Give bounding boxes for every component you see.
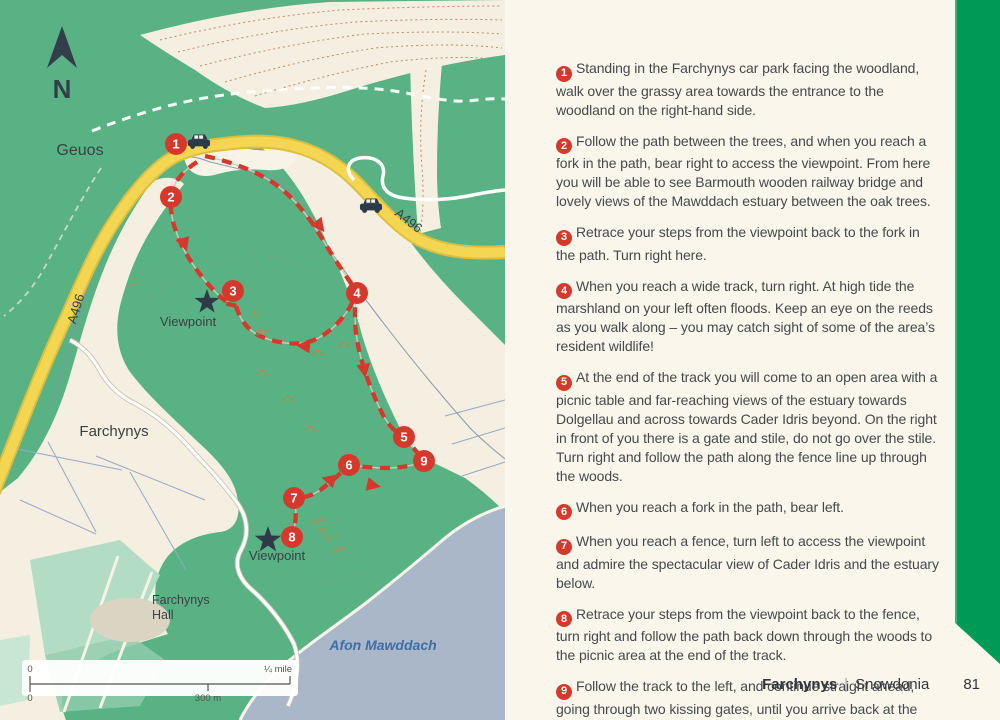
step-6-text: When you reach a fork in the path, bear … bbox=[576, 499, 844, 515]
route-marker-3: 3 bbox=[222, 280, 244, 302]
svg-text:8: 8 bbox=[288, 530, 295, 545]
step-1: 1Standing in the Farchynys car park faci… bbox=[556, 59, 940, 120]
label-geuos: Geuos bbox=[56, 142, 103, 159]
route-marker-6: 6 bbox=[338, 454, 360, 476]
step-2-text: Follow the path between the trees, and w… bbox=[556, 133, 931, 210]
scale-300m: 300 m bbox=[195, 693, 221, 704]
scale-zero-bottom: 0 bbox=[27, 693, 32, 704]
footer-separator: | bbox=[844, 676, 848, 693]
scale-zero-top: 0 bbox=[27, 664, 32, 675]
footer-walk-name: Farchynys bbox=[762, 676, 837, 693]
label-viewpoint-lower: Viewpoint bbox=[249, 548, 306, 563]
svg-text:9: 9 bbox=[420, 454, 427, 469]
route-marker-2: 2 bbox=[160, 186, 182, 208]
step-8-text: Retrace your steps from the viewpoint ba… bbox=[556, 606, 932, 664]
step-1-badge: 1 bbox=[556, 66, 572, 82]
route-marker-7: 7 bbox=[283, 487, 305, 509]
step-3-text: Retrace your steps from the viewpoint ba… bbox=[556, 224, 920, 263]
step-4-text: When you reach a wide track, turn right.… bbox=[556, 278, 935, 355]
svg-text:7: 7 bbox=[290, 491, 297, 506]
step-2-badge: 2 bbox=[556, 138, 572, 154]
svg-text:4: 4 bbox=[353, 286, 361, 301]
step-3: 3Retrace your steps from the viewpoint b… bbox=[556, 223, 940, 265]
label-farchynys: Farchynys bbox=[79, 423, 148, 440]
label-hall-2: Hall bbox=[152, 608, 174, 622]
step-1-text: Standing in the Farchynys car park facin… bbox=[556, 60, 919, 118]
step-8-badge: 8 bbox=[556, 611, 572, 627]
step-5-badge: 5 bbox=[556, 375, 572, 391]
step-3-badge: 3 bbox=[556, 230, 572, 246]
step-7-badge: 7 bbox=[556, 539, 572, 555]
step-5: 5At the end of the track you will come t… bbox=[556, 368, 940, 486]
label-afon-mawddach: Afon Mawddach bbox=[328, 637, 436, 653]
svg-text:1: 1 bbox=[172, 137, 179, 152]
route-marker-4: 4 bbox=[346, 282, 368, 304]
walk-map-svg: 1 2 3 4 5 6 7 8 9 Geuos Viewpoint Viewpo… bbox=[0, 0, 505, 720]
svg-text:6: 6 bbox=[345, 458, 352, 473]
guidebook-page: 1 2 3 4 5 6 7 8 9 Geuos Viewpoint Viewpo… bbox=[0, 0, 1000, 720]
step-7: 7When you reach a fence, turn left to ac… bbox=[556, 532, 940, 593]
route-marker-8: 8 bbox=[281, 526, 303, 548]
scale-quarter-mile: ¼ mile bbox=[264, 664, 292, 675]
route-marker-9: 9 bbox=[413, 450, 435, 472]
svg-text:5: 5 bbox=[400, 430, 407, 445]
page-footer: Farchynys | Snowdonia 81 bbox=[556, 676, 980, 693]
route-marker-5: 5 bbox=[393, 426, 415, 448]
svg-text:3: 3 bbox=[229, 284, 236, 299]
step-2: 2Follow the path between the trees, and … bbox=[556, 132, 940, 212]
step-5-text: At the end of the track you will come to… bbox=[556, 369, 937, 484]
walk-map: 1 2 3 4 5 6 7 8 9 Geuos Viewpoint Viewpo… bbox=[0, 0, 505, 720]
step-8: 8Retrace your steps from the viewpoint b… bbox=[556, 605, 940, 666]
accent-band bbox=[955, 0, 1000, 664]
footer-region: Snowdonia bbox=[855, 676, 929, 693]
route-marker-1: 1 bbox=[165, 133, 187, 155]
step-6-badge: 6 bbox=[556, 504, 572, 520]
label-hall-1: Farchynys bbox=[152, 593, 210, 607]
directions-list: 1Standing in the Farchynys car park faci… bbox=[556, 59, 940, 720]
step-6: 6When you reach a fork in the path, bear… bbox=[556, 498, 940, 521]
label-viewpoint-upper: Viewpoint bbox=[160, 314, 217, 329]
step-7-text: When you reach a fence, turn left to acc… bbox=[556, 533, 939, 591]
north-letter: N bbox=[53, 74, 72, 104]
svg-text:2: 2 bbox=[167, 190, 174, 205]
step-4: 4When you reach a wide track, turn right… bbox=[556, 277, 940, 357]
step-4-badge: 4 bbox=[556, 283, 572, 299]
page-number: 81 bbox=[963, 676, 980, 693]
